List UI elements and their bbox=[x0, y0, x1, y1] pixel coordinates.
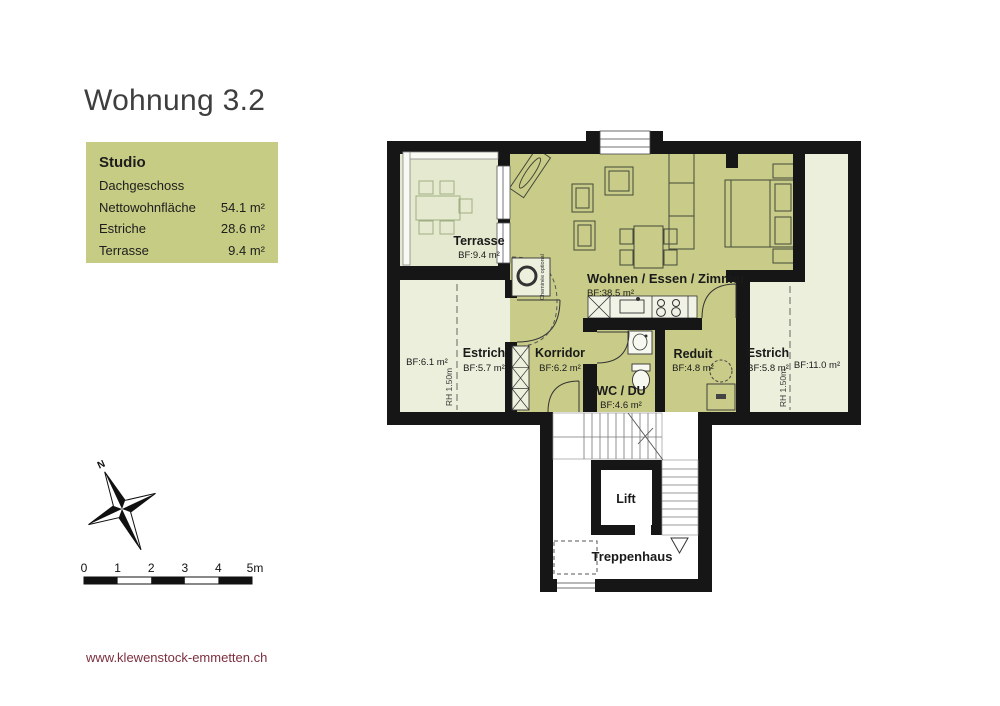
wall-terrace-bottom bbox=[387, 266, 510, 280]
compass-star-dark bbox=[71, 456, 174, 565]
wall-left bbox=[387, 141, 400, 425]
label-terrasse-area: BF:9.4 m² bbox=[458, 250, 500, 261]
label-wc-area: BF:4.6 m² bbox=[600, 400, 642, 411]
cheminee-note: Cheminée optional bbox=[540, 254, 546, 300]
floor-plan-drawing: Cheminée optional Terrasse BF:9.4 m² Woh… bbox=[0, 0, 1000, 706]
dormer-cap bbox=[650, 131, 663, 154]
stairwell-entry-gap bbox=[557, 579, 595, 592]
scale-tick: 4 bbox=[215, 561, 222, 575]
wc-sink-drain bbox=[645, 335, 648, 338]
label-korridor: Korridor bbox=[535, 346, 585, 360]
label-treppenhaus: Treppenhaus bbox=[592, 549, 673, 564]
stairwell-wall-left bbox=[540, 412, 553, 592]
scale-tick: 3 bbox=[181, 561, 188, 575]
scale-tick: 2 bbox=[148, 561, 155, 575]
label-reduit-area: BF:4.8 m² bbox=[672, 363, 714, 374]
terrace-railing-top bbox=[403, 152, 498, 159]
kitchen-faucet bbox=[636, 297, 640, 301]
kitchen-counter bbox=[588, 296, 697, 318]
label-wohnen-area: BF:38.5 m² bbox=[587, 288, 634, 299]
kitchen bbox=[588, 296, 697, 318]
wall-bedroom-stub bbox=[726, 154, 738, 168]
wall-wc-reduit bbox=[655, 318, 665, 412]
north-label: N bbox=[96, 459, 107, 472]
label-terrasse: Terrasse bbox=[453, 234, 504, 248]
label-wc: WC / DU bbox=[596, 384, 645, 398]
label-estrich-left-area: BF:5.7 m² bbox=[463, 363, 505, 374]
scale-tick: 0 bbox=[81, 561, 88, 575]
stairwell-wall-right bbox=[698, 412, 712, 592]
website-link[interactable]: www.klewenstock-emmetten.ch bbox=[86, 650, 267, 665]
label-reduit: Reduit bbox=[674, 347, 714, 361]
label-estrich-left: Estrich bbox=[463, 346, 505, 360]
label-estrich-right-note: RH 1.50m bbox=[778, 369, 788, 407]
scale-bar: 0 1 2 3 4 5m bbox=[81, 561, 264, 584]
label-estrich-left-note: RH 1.50m bbox=[444, 368, 454, 406]
wall-bottom-left bbox=[387, 412, 553, 425]
living-area-fill bbox=[510, 154, 793, 282]
dormer-window bbox=[586, 131, 663, 154]
terrace-railing-left bbox=[403, 152, 410, 265]
compass-rose: N bbox=[66, 444, 175, 565]
stairs-down-arrow bbox=[671, 538, 688, 553]
lower-stairs-outline bbox=[662, 460, 698, 535]
label-estrich-left-area2: BF:6.1 m² bbox=[406, 357, 448, 368]
wc-sink bbox=[628, 331, 652, 354]
scale-bar-seg bbox=[218, 577, 252, 584]
terrace-door-glass bbox=[497, 166, 510, 219]
scale-tick: 5m bbox=[247, 561, 264, 575]
dormer-glass bbox=[600, 131, 650, 154]
wall-kitchen-a bbox=[583, 318, 702, 330]
scale-bar-seg bbox=[84, 577, 118, 584]
label-estrich-right: Estrich bbox=[747, 346, 789, 360]
wall-bottom-right bbox=[698, 412, 861, 425]
label-korridor-area: BF:6.2 m² bbox=[539, 363, 581, 374]
wall-bedroom-right bbox=[793, 141, 805, 282]
scale-bar-seg bbox=[151, 577, 185, 584]
scale-tick: 1 bbox=[114, 561, 121, 575]
label-estrich-right-area2: BF:11.0 m² bbox=[794, 360, 840, 371]
wall-corridor-wc-b bbox=[583, 364, 597, 412]
wall-right bbox=[848, 141, 861, 425]
lift-door-gap bbox=[635, 525, 651, 535]
label-wohnen: Wohnen / Essen / Zimmer bbox=[587, 271, 745, 286]
label-lift: Lift bbox=[616, 492, 636, 506]
dormer-cap bbox=[586, 131, 600, 154]
dryer-mark bbox=[716, 394, 726, 399]
